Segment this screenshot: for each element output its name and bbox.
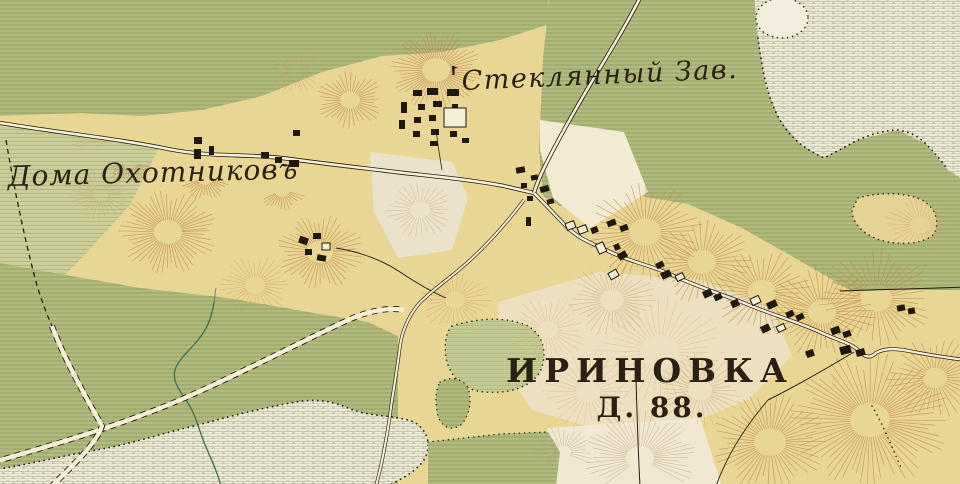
building: [305, 249, 312, 255]
building: [444, 108, 466, 127]
building: [431, 129, 439, 135]
building: [429, 115, 436, 121]
building: [413, 90, 422, 96]
label-village-households: Д. 88.: [596, 391, 707, 424]
map-canvas: Стеклянный Зав. Дома Охотниковъ ИРИНОВКА…: [0, 0, 960, 484]
building: [433, 101, 442, 107]
label-village-name: ИРИНОВКА: [506, 351, 794, 390]
building: [462, 138, 469, 143]
building: [399, 120, 405, 129]
building: [322, 243, 330, 250]
building: [418, 104, 425, 110]
building: [413, 131, 420, 137]
historical-map-viewport: Стеклянный Зав. Дома Охотниковъ ИРИНОВКА…: [0, 0, 960, 484]
building: [450, 131, 457, 137]
building: [313, 233, 321, 239]
building: [427, 88, 438, 95]
building: [908, 307, 916, 314]
building: [526, 217, 531, 226]
building: [401, 102, 407, 113]
building: [447, 89, 459, 96]
building: [527, 196, 533, 201]
building: [414, 117, 421, 123]
building: [521, 183, 527, 188]
building: [194, 137, 202, 144]
building: [430, 141, 438, 146]
building: [293, 130, 300, 136]
